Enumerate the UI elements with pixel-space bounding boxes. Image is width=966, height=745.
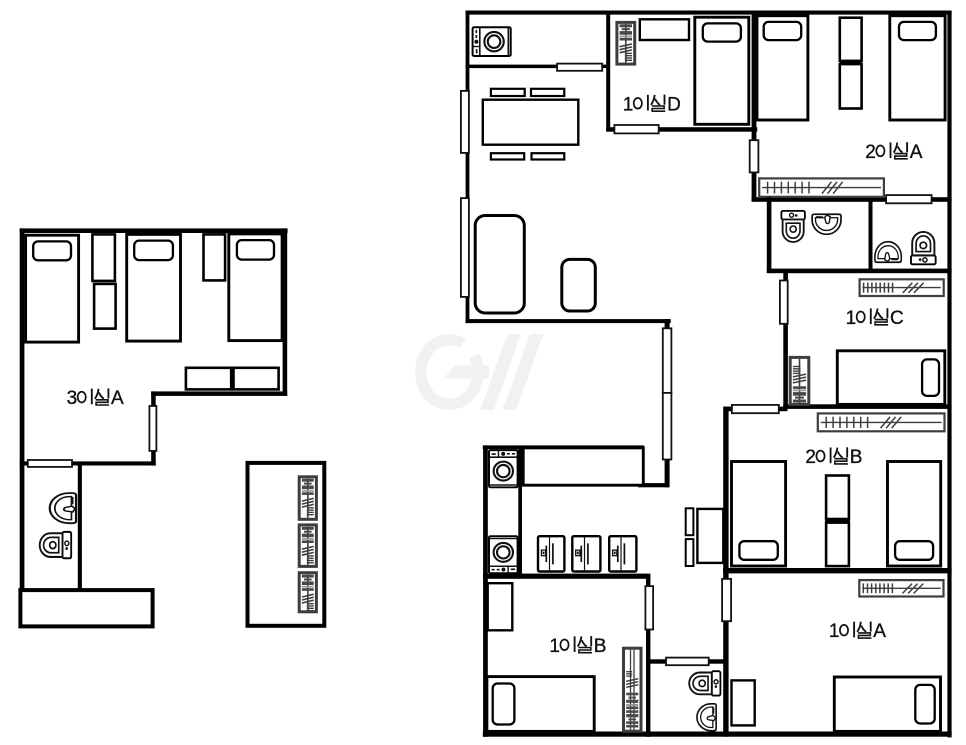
svg-text:C: C bbox=[890, 308, 904, 329]
svg-text:A: A bbox=[910, 142, 923, 163]
svg-text:1: 1 bbox=[623, 94, 634, 115]
svg-text:3: 3 bbox=[67, 388, 78, 409]
svg-text:2: 2 bbox=[865, 142, 876, 163]
svg-text:A: A bbox=[111, 388, 124, 409]
svg-text:2: 2 bbox=[805, 447, 816, 468]
svg-text:1: 1 bbox=[549, 636, 560, 657]
svg-text:B: B bbox=[594, 636, 607, 657]
svg-text:B: B bbox=[850, 447, 863, 468]
svg-text:1: 1 bbox=[829, 621, 840, 642]
svg-text:D: D bbox=[667, 94, 681, 115]
svg-text:1: 1 bbox=[846, 308, 857, 329]
svg-text:A: A bbox=[873, 621, 886, 642]
